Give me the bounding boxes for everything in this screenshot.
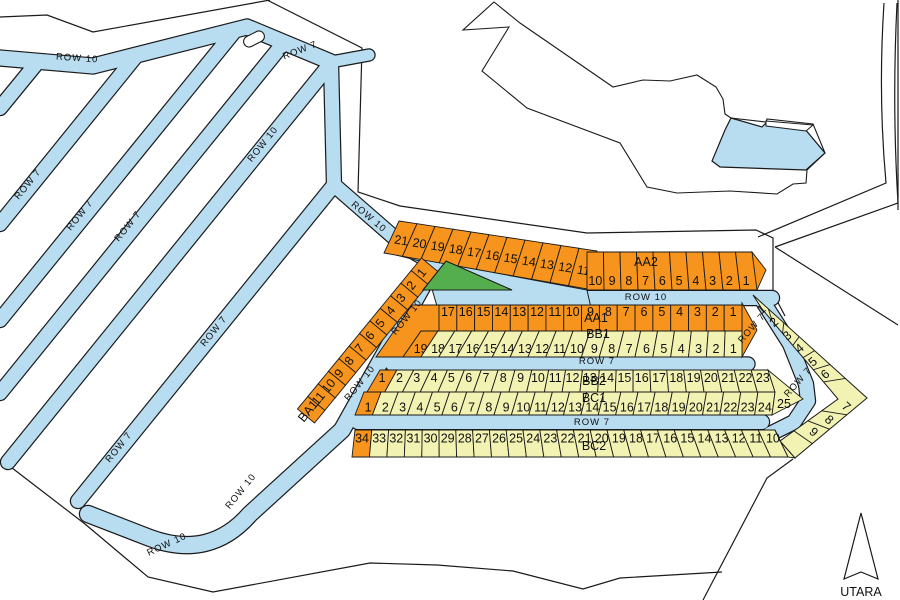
plot-number-BB2: 17 [652,371,666,385]
plot-number-BB2: 23 [756,371,770,385]
plot-number-BC2: 30 [424,432,438,446]
plot-number-AA2: 6 [659,274,666,288]
plot-number-AA2: 15 [503,251,519,267]
plot-number-BB1: 4 [678,342,685,356]
plot-number-BC2: 25 [509,432,523,446]
plot-number-BC2: 28 [458,432,472,446]
plot-number-BC1: 1 [365,401,372,415]
plot-number-AA2: 8 [625,274,632,288]
road-label: ROW 7 [574,417,610,428]
plot-number-AA1: 16 [459,305,473,319]
plot-number-BC1: 12 [551,401,565,415]
plot-number-BB2: 4 [431,371,438,385]
plot-number-BB1: 10 [570,342,584,356]
section-label-BB1: BB1 [586,327,610,341]
plot-number-AA2: 10 [588,274,602,288]
plot-number-BB2: 18 [669,371,683,385]
plot-number-AA1: 10 [566,305,580,319]
plot-number-BC2: 23 [543,432,557,446]
section-label-AA1: AA1 [584,311,608,325]
compass-north-arrow-icon [844,513,878,579]
site-plan-map: 212019181716151413121110987654321AA21716… [0,0,900,600]
plot-number-BB1: 11 [553,342,566,356]
plot-number-BC1: 7 [468,401,475,415]
plot-number-AA2: 7 [642,274,649,288]
plot-number-AA1: 12 [530,305,544,319]
plot-number-BC2: 17 [646,432,660,446]
plot-number-AA1: 4 [676,305,683,319]
road-label: ROW 7 [579,356,615,367]
plot-number-BB1: 1 [730,342,737,356]
plot-number-BB2: 22 [739,371,753,385]
plot-number-BB2: 9 [517,371,524,385]
plot-number-BB2: 15 [617,371,631,385]
estate-boundary [775,247,898,325]
plot-number-BB2: 20 [704,371,718,385]
plot-number-AA1: 17 [441,305,455,319]
plot-number-AA1: 5 [658,305,665,319]
plot-number-BC2: 34 [355,432,369,446]
plot-number-BB1: 3 [695,342,702,356]
plot-number-BC2: 32 [389,432,403,446]
plot-number-BB1: 6 [643,342,650,356]
plot-number-BB1: 2 [712,342,719,356]
plot-number-BC2: 19 [612,432,626,446]
plot-number-AA1: 14 [494,305,508,319]
plot-number-BC2: 10 [766,432,780,446]
plot-number-AA2: 3 [709,274,716,288]
plot-number-BC1: 11 [534,401,547,415]
plot-number-BC1: 23 [741,401,755,415]
plot-number-AA1: 3 [694,305,701,319]
plot-number-AA2: 17 [466,245,482,261]
plot-number-AA2: 1 [743,274,750,288]
plot-number-AA2: 5 [676,274,683,288]
plot-number-BB2: 10 [531,371,545,385]
plot-number-BC1: 6 [451,401,458,415]
plot-number-BC1: 20 [689,401,703,415]
plot-number-BB1: 8 [608,342,615,356]
plot-number-BB1: 7 [626,342,633,356]
map-canvas: 212019181716151413121110987654321AA21716… [0,0,900,600]
plot-number-AA2: 14 [521,254,537,270]
plot-number-BC2: 29 [441,432,455,446]
plot-number-BB2: 3 [413,371,420,385]
plot-number-AA1: 13 [512,305,526,319]
plot-number-AA2: 4 [692,274,699,288]
plot-number-BB1: 5 [660,342,667,356]
plot-number-AA2: 9 [609,274,616,288]
plot-number-BB2: 6 [465,371,472,385]
compass-label: UTARA [840,585,882,599]
plot-number-BB2: 2 [396,371,403,385]
plot-number-BC1: 5 [434,401,441,415]
plot-number-BC2: 27 [475,432,489,446]
plot-number-AA1: 1 [730,305,737,319]
road-label: ROW 10 [625,292,667,303]
plot-number-BC1: 9 [503,401,510,415]
plot-number-BB1: 9 [591,342,598,356]
plot-number-BC1: 8 [485,401,492,415]
plot-number-BC1: 16 [620,401,634,415]
plot-number-AA2: 13 [539,257,555,273]
plot-number-BC1: 2 [382,401,389,415]
plot-number-BB2: 19 [687,371,701,385]
plot-number-BC2: 18 [629,432,643,446]
plot-number-AA1: 2 [712,305,719,319]
plot-number-AA1: 6 [640,305,647,319]
plot-number-AA2: 18 [448,242,464,258]
plot-number-BB2: 16 [635,371,649,385]
road [0,64,36,108]
section-label-BC2: BC2 [582,439,606,453]
plot-number-BB2: 12 [566,371,580,385]
plot-number-BC2: 24 [526,432,540,446]
plot-number-BC2: 26 [492,432,506,446]
plot-number-BC1: 24 [758,401,772,415]
plot-number-BC1: 17 [637,401,651,415]
plot-number-BC2: 22 [561,432,575,446]
plot-number-BC1: 13 [568,401,582,415]
plot-number-BC1: 10 [516,401,530,415]
plot-number-BB2: 1 [379,371,386,385]
section-label-BB2: BB2 [582,374,606,388]
plot-number-BC2: 33 [372,432,386,446]
plot-number-BC1: 22 [723,401,737,415]
plot-number-BB2: 7 [483,371,490,385]
estate-boundary [703,459,793,600]
plot-number-BC1: 18 [654,401,668,415]
plot-number-BB2: 11 [549,371,562,385]
plot-number-AA1: 7 [623,305,630,319]
plot-number-BB2: 5 [448,371,455,385]
plot-number-BB2: 21 [721,371,735,385]
plot-number-AA1: 15 [477,305,491,319]
plot-number-BC1: 4 [416,401,423,415]
plot-number-AA2: 16 [484,248,500,264]
section-label-AA2: AA2 [634,255,658,269]
plot-number-BC1: 3 [399,401,406,415]
section-label-BC1: BC1 [582,391,606,405]
plot-number-AA1: 11 [548,305,561,319]
plot-number-AA2: 2 [726,274,733,288]
plot-number-BB2: 8 [500,371,507,385]
plot-number-BC1: 19 [672,401,686,415]
plot-number-BC1: 21 [706,401,720,415]
plot-number-AA2: 12 [557,260,573,276]
plot-number-BC2: 31 [406,432,420,446]
